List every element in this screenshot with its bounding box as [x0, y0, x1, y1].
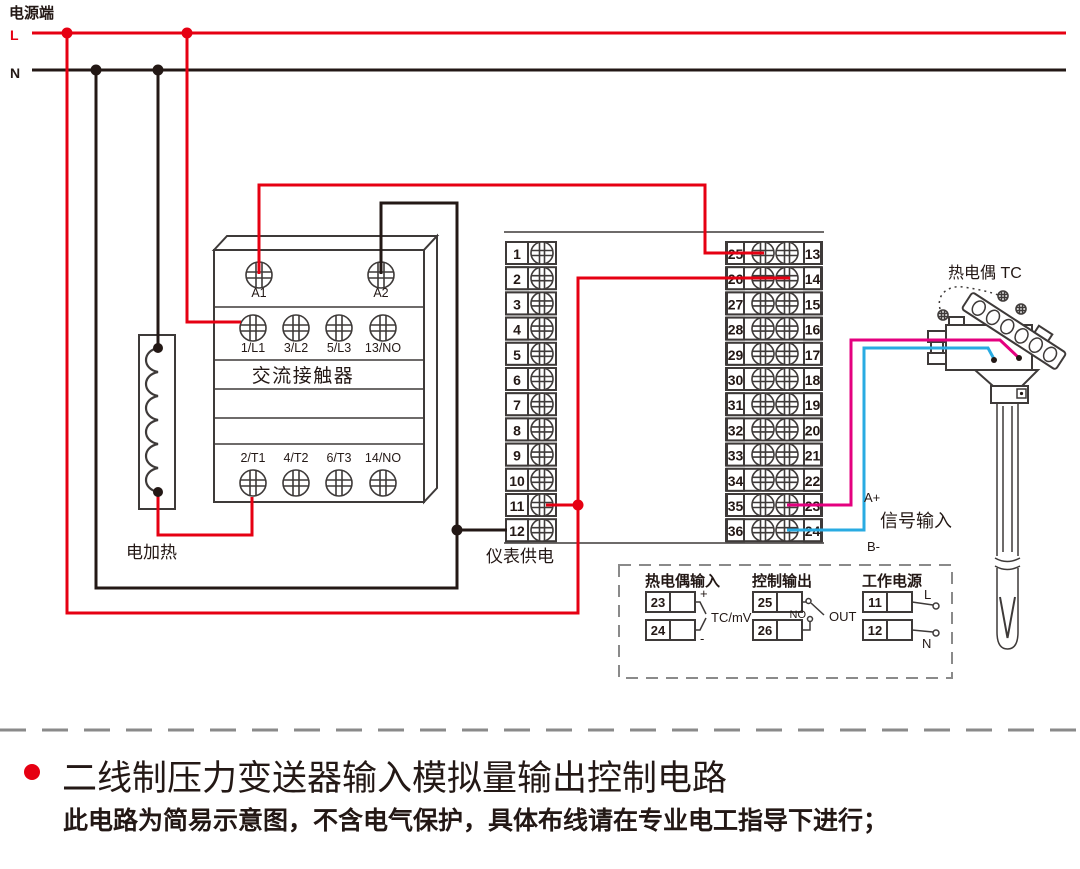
signal-input-label: 信号输入	[880, 511, 952, 531]
thermocouple-probe-tip-arrow	[1000, 597, 1015, 638]
meter-right-terminal-block: 2513261427152816291730183119322033213422…	[726, 242, 822, 541]
contactor-t1-label: 2/T1	[240, 451, 265, 465]
meter-terminal-row-right: 2715	[726, 292, 822, 314]
thermocouple-label: 热电偶 TC	[948, 264, 1022, 282]
meter-terminal-row-right: 2816	[726, 318, 822, 340]
meter-terminal-row-right: 3422	[726, 469, 822, 491]
terminal-number: 6	[513, 372, 521, 388]
signal-labels: A+ B- 信号输入	[864, 490, 952, 554]
legend-tc-input-title: 热电偶输入	[645, 572, 720, 590]
contactor-right-face	[424, 236, 437, 502]
thermocouple-probe-break	[995, 558, 1020, 570]
legend-working-power-title: 工作电源	[862, 572, 922, 590]
meter-terminal-row-right: 3321	[726, 444, 822, 466]
legend-l-contact	[933, 603, 939, 609]
terminal-number: 32	[728, 422, 744, 438]
contactor-title: 交流接触器	[252, 365, 355, 387]
meter-terminal-row-left: 8	[506, 418, 556, 440]
contactor-top-face	[214, 236, 437, 250]
terminal-number: 15	[805, 296, 821, 312]
legend-out-label: OUT	[829, 609, 857, 624]
legend-box: 热电偶输入 23 24 + - TC/mV 控制输出 25 26 NO OUT …	[619, 565, 952, 678]
terminal-number: 4	[513, 322, 521, 338]
terminal-number: 12	[509, 523, 525, 539]
bullet-icon	[24, 764, 40, 780]
n-line-label: N	[10, 65, 20, 81]
terminal-number: 22	[805, 473, 821, 489]
meter-terminal-row-left: 9	[506, 444, 556, 466]
legend-switch-contact-top	[806, 599, 811, 604]
terminal-number: 18	[805, 372, 821, 388]
wiring-diagram: 电源端 L N 123456789101112 2513261427152816…	[0, 0, 1080, 740]
b-minus-label: B-	[867, 539, 880, 554]
meter-terminal-row-left: 7	[506, 393, 556, 415]
terminal-number: 16	[805, 322, 821, 338]
a-plus-label: A+	[864, 490, 880, 505]
legend-terminal-23: 23	[651, 595, 665, 610]
meter-terminal-row-right: 3018	[726, 368, 822, 390]
terminal-number: 28	[728, 322, 744, 338]
meter-terminal-row-right: 2917	[726, 343, 822, 365]
heater-body	[139, 335, 175, 509]
thermocouple-neck	[975, 370, 1038, 386]
thermocouple-probe-upper	[997, 403, 1018, 556]
terminal-number: 35	[728, 498, 744, 514]
wiring-diagram-page: 电源端 L N 123456789101112 2513261427152816…	[0, 0, 1080, 869]
legend-n-contact	[933, 630, 939, 636]
meter-terminal-row-left: 5	[506, 343, 556, 365]
legend-minus: -	[700, 631, 704, 646]
contactor-no14-label: 14/NO	[365, 451, 401, 465]
terminal-number: 5	[513, 347, 521, 363]
meter-terminal-row-left: 1	[506, 242, 556, 264]
meter-terminal-row-right: 3119	[726, 393, 822, 415]
legend-l-label: L	[924, 587, 931, 602]
terminal-number: 20	[805, 422, 821, 438]
meter-terminal-row-left: 4	[506, 318, 556, 340]
legend-switch-contact-no	[808, 617, 813, 622]
terminal-number: 8	[513, 422, 521, 438]
terminal-number: 11	[510, 498, 525, 514]
legend-control-output-title: 控制输出	[752, 572, 812, 590]
legend-terminal-11: 11	[868, 595, 882, 610]
terminal-number: 19	[805, 397, 821, 413]
legend-tc-input: 热电偶输入 23 24 + - TC/mV	[645, 572, 752, 646]
contactor-no13-label: 13/NO	[365, 341, 401, 355]
meter-terminal-row-left: 12	[506, 519, 556, 541]
legend-tc-wires	[695, 602, 706, 630]
legend-terminal-12: 12	[868, 623, 882, 638]
terminal-number: 9	[513, 448, 521, 464]
contactor-a1-label: A1	[251, 286, 266, 300]
legend-terminal-26: 26	[758, 623, 772, 638]
contactor-a2-label: A2	[373, 286, 388, 300]
terminal-number: 17	[805, 347, 821, 363]
terminal-number: 7	[513, 397, 521, 413]
legend-working-power: 工作电源 11 12 L N	[862, 572, 939, 651]
contactor-t2-label: 4/T2	[283, 451, 308, 465]
caption-subtitle: 此电路为简易示意图，不含电气保护，具体布线请在专业电工指导下进行；	[63, 801, 888, 837]
legend-plus: +	[700, 586, 708, 601]
meter-terminal-row-left: 10	[506, 469, 556, 491]
terminal-number: 13	[805, 246, 821, 262]
legend-control-output: 控制输出 25 26 NO OUT	[752, 572, 857, 640]
l-line-label: L	[10, 27, 19, 43]
meter-terminal-row-left: 2	[506, 267, 556, 289]
legend-n-label: N	[922, 636, 931, 651]
legend-tc-unit: TC/mV	[711, 610, 752, 625]
heater: 电加热	[126, 335, 177, 562]
meter-terminal-row-left: 3	[506, 292, 556, 314]
terminal-number: 27	[728, 296, 744, 312]
terminal-number: 3	[513, 296, 521, 312]
meter-terminal-row-left: 6	[506, 368, 556, 390]
contactor: A1 A2 1/L1 3/L2 5/L3 13/NO 2/T1 4/T2 6/T…	[214, 236, 437, 502]
terminal-number: 33	[728, 448, 744, 464]
terminal-number: 14	[805, 271, 821, 287]
terminal-number: 21	[805, 448, 821, 464]
meter-terminal-row-right: 3220	[726, 418, 822, 440]
caption-title: 二线制压力变送器输入模拟量输出控制电路	[62, 750, 727, 801]
terminal-number: 31	[728, 397, 744, 413]
heater-label: 电加热	[126, 543, 177, 562]
contactor-l1-label: 1/L1	[241, 341, 265, 355]
contactor-t3-label: 6/T3	[326, 451, 351, 465]
terminal-number: 10	[509, 473, 525, 489]
terminal-number: 1	[513, 246, 521, 262]
terminal-number: 34	[728, 473, 744, 489]
terminal-number: 29	[728, 347, 744, 363]
legend-terminal-24: 24	[651, 623, 666, 638]
terminal-number: 36	[728, 523, 744, 539]
legend-terminal-25: 25	[758, 595, 772, 610]
power-title: 电源端	[9, 4, 54, 22]
meter-supply-label: 仪表供电	[486, 547, 554, 566]
contactor-l3-label: 5/L3	[327, 341, 351, 355]
legend-no-label: NO	[790, 609, 807, 621]
thermocouple: 热电偶 TC	[928, 264, 1071, 649]
legend-power-wires	[912, 602, 933, 632]
terminal-number: 2	[513, 271, 521, 287]
meter-left-terminal-column: 123456789101112	[506, 242, 556, 541]
terminal-number: 30	[728, 372, 744, 388]
contactor-l2-label: 3/L2	[284, 341, 308, 355]
